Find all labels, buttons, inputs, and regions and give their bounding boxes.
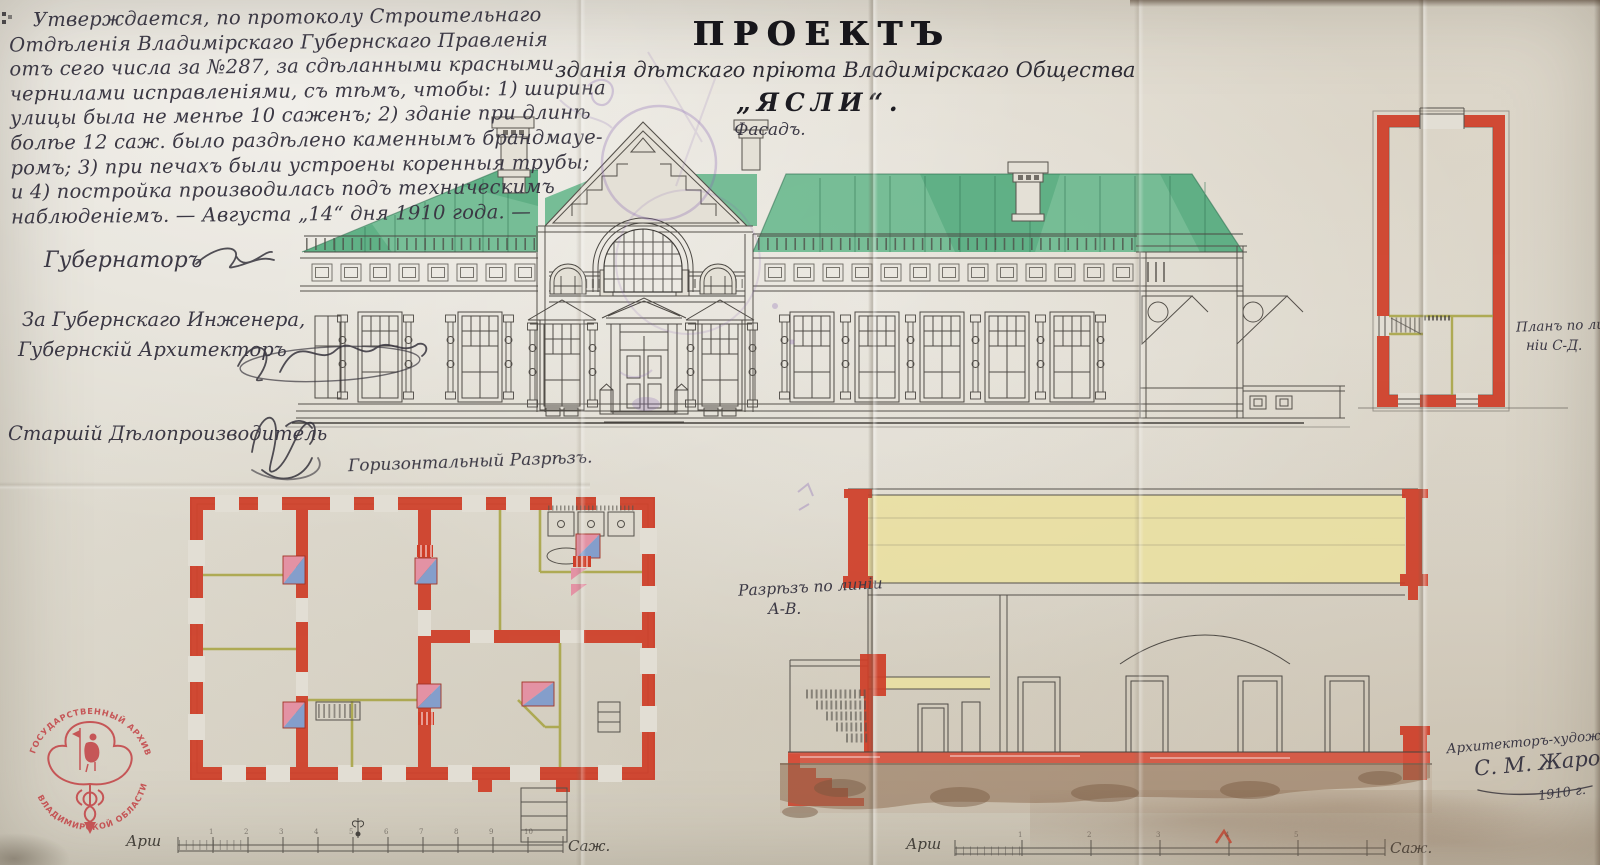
scale-tick-number: 5 — [1294, 831, 1298, 839]
eave-railing — [304, 234, 1243, 252]
plan-partitions — [203, 510, 642, 767]
plan-walls — [190, 497, 655, 792]
scale-bars — [178, 818, 1385, 856]
frieze-panels — [312, 264, 1133, 281]
plan-stoves — [283, 534, 600, 728]
architect-year: 1910 г. — [1537, 783, 1587, 805]
scale-tick-number: 9 — [489, 828, 493, 836]
clerk-label: Старшій Дѣлопроизводитель — [8, 422, 327, 445]
paper-mark — [2, 12, 6, 16]
stamp-emblem — [48, 722, 131, 834]
fold-crease-horizontal — [0, 482, 590, 490]
pedimented-windows — [528, 300, 754, 410]
scale-tick-number: 2 — [1087, 831, 1091, 839]
upper-plan-drawing — [1358, 108, 1568, 411]
north-mark — [352, 818, 363, 838]
approval-text-block: Утверждается, по протоколу Строительнаго… — [9, 3, 491, 229]
page-subtitle: зданія дѣтскаго пріюта Владимірскаго Общ… — [555, 58, 1095, 82]
scalebar-left-numbers: 12345678910 — [0, 828, 1600, 840]
approval-line: и 4) постройка производилась подъ технич… — [11, 176, 491, 206]
floor-plan-label: Горизонтальный Разрѣзъ. — [348, 448, 593, 477]
approval-line: чернилами исправленіями, съ тѣмъ, чтобы:… — [10, 77, 490, 107]
fold-crease — [868, 0, 878, 865]
paper-edge-shadow — [1594, 0, 1600, 865]
roof-green — [302, 170, 1243, 252]
architect-name-underline — [1478, 786, 1592, 794]
section-cut-walls — [788, 489, 1430, 806]
governor-label: Губернаторъ — [44, 248, 202, 273]
section-ground — [780, 763, 1432, 818]
scale-tick-number: 7 — [419, 828, 423, 836]
architect-label: Губернскій Архитекторъ — [18, 338, 287, 361]
building-name: „ЯСЛИ“. — [700, 88, 940, 117]
archive-stamp: ГОСУДАРСТВЕННЫЙ АРХИВ ВЛАДИМИРСКОЙ ОБЛАС… — [27, 706, 153, 834]
entrance-door — [546, 298, 736, 422]
wing-windows — [315, 312, 1094, 402]
engineer-prefix-label: За Губернскаго Инженера, — [22, 308, 305, 331]
balustrade — [549, 272, 745, 302]
plan-pencil-details — [316, 512, 634, 842]
right-pavilion — [1136, 246, 1345, 418]
paper-edge-shadow — [1130, 0, 1600, 7]
fold-crease — [1134, 0, 1144, 865]
approval-line: отъ сего числа за №287, за сдѣланными кр… — [9, 53, 489, 83]
scale-tick-number: 1 — [209, 828, 213, 836]
drawings-layer: ГОСУДАРСТВЕННЫЙ АРХИВ ВЛАДИМИРСКОЙ ОБЛАС… — [0, 0, 1600, 865]
plan-flues — [417, 545, 591, 725]
fold-crease — [1418, 0, 1428, 865]
scalebar-right-sazhen-label: Саж. — [1390, 839, 1432, 857]
drawing-sheet: ГОСУДАРСТВЕННЫЙ АРХИВ ВЛАДИМИРСКОЙ ОБЛАС… — [0, 0, 1600, 865]
scale-tick-number: 3 — [1156, 831, 1160, 839]
scale-tick-number: 4 — [1225, 831, 1229, 839]
pediment — [545, 122, 747, 226]
page-title: ПРОЕКТЪ — [652, 14, 992, 53]
scale-tick-number: 5 — [349, 828, 353, 836]
fold-crease — [576, 0, 586, 865]
paper-stain — [0, 833, 70, 865]
section-label-line2: А-В. — [768, 600, 801, 618]
section-doors — [918, 635, 1369, 752]
approval-line: ромъ; 3) при печахъ были устроены коренн… — [10, 151, 490, 181]
facade-label: Фасадъ. — [700, 120, 840, 140]
clerk-signature — [252, 418, 320, 480]
chimneys — [492, 117, 1048, 221]
scalebar-left-sazhen-label: Саж. — [568, 837, 610, 855]
scalebar-right-arshin-label: Арш — [906, 835, 941, 853]
facade-elevation-drawing — [286, 117, 1350, 427]
side-plan-label-line2: ніи С-Д. — [1526, 338, 1582, 354]
cross-section-drawing — [780, 489, 1432, 818]
svg-text:ГОСУДАРСТВЕННЫЙ АРХИВ: ГОСУДАРСТВЕННЫЙ АРХИВ — [27, 706, 153, 757]
scalebar-left-arshin-label: Арш — [126, 832, 161, 850]
approval-line: болѣе 12 саж. было раздѣлено каменнымъ б… — [10, 126, 490, 156]
paper-stain — [1030, 790, 1600, 865]
scale-tick-number: 2 — [244, 828, 248, 836]
approval-line: Утверждается, по протоколу Строительнаго — [9, 3, 489, 33]
scale-tick-number: 1 — [1018, 831, 1022, 839]
side-plan-label-line1: Планъ по ли- — [1516, 316, 1600, 335]
scalebar-right-numbers: 12345 — [0, 831, 1600, 843]
signature-flourishes — [196, 248, 1592, 794]
plan-window-gaps — [188, 495, 657, 782]
architect-name: С. М. Жаровъ — [1473, 743, 1600, 780]
architect-signature — [238, 342, 426, 385]
scale-tick-number: 6 — [384, 828, 388, 836]
architect-title: Архитекторъ-художникъ — [1446, 725, 1600, 757]
scale-tick-number: 8 — [454, 828, 458, 836]
governor-signature — [196, 248, 274, 267]
fanlight-window — [604, 229, 682, 292]
scale-tick-number: 10 — [524, 828, 533, 836]
red-check-mark — [1216, 831, 1231, 843]
floor-plan-drawing — [188, 495, 657, 842]
svg-text:ВЛАДИМИРСКОЙ ОБЛАСТИ: ВЛАДИМИРСКОЙ ОБЛАСТИ — [36, 781, 149, 832]
purple-stamp-marks — [560, 52, 813, 510]
section-label-line1: Разрѣзъ по линіи — [738, 574, 883, 600]
stamp-text-top: ГОСУДАРСТВЕННЫЙ АРХИВ — [27, 706, 153, 757]
approval-line: улицы была не менѣе 10 саженъ; 2) зданіе… — [10, 102, 490, 132]
scale-tick-number: 3 — [279, 828, 283, 836]
approval-line: наблюденіемъ. — Августа „14“ дня 1910 го… — [11, 200, 491, 230]
stamp-text-bottom: ВЛАДИМИРСКОЙ ОБЛАСТИ — [36, 781, 149, 832]
approval-line: Отдѣленія Владимірскаго Губернскаго Прав… — [9, 28, 489, 58]
scale-tick-number: 4 — [314, 828, 318, 836]
